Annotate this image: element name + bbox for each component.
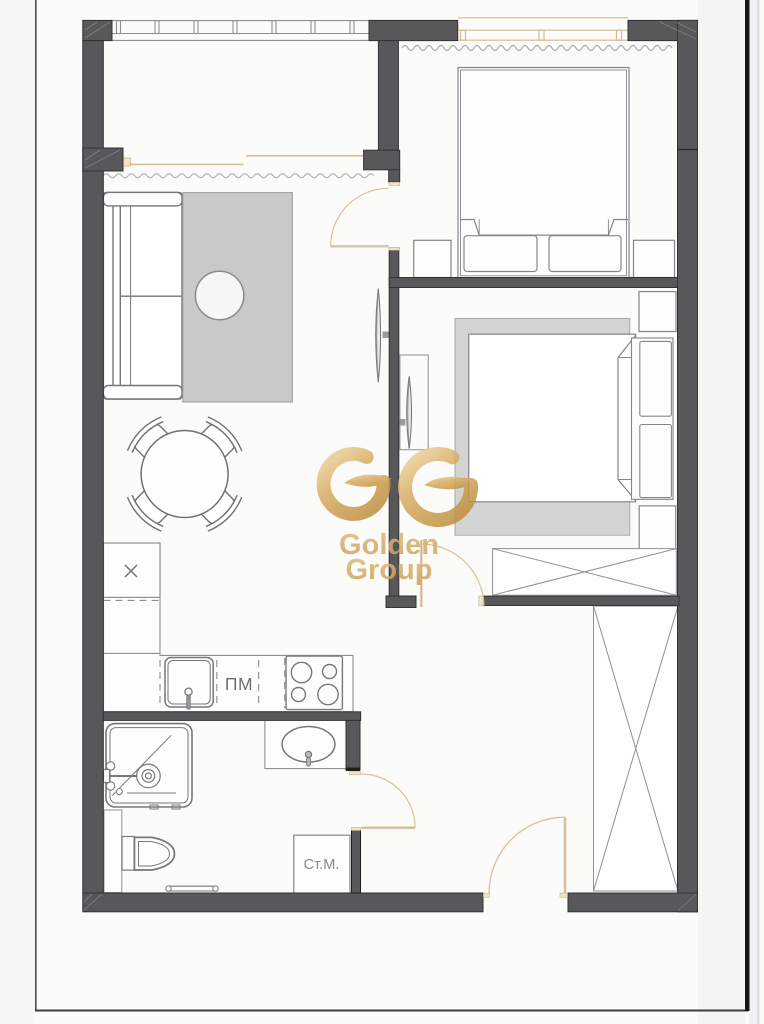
svg-text:Group: Group (346, 554, 433, 586)
svg-text:ПМ: ПМ (225, 674, 253, 694)
svg-text:Ст.М.: Ст.М. (304, 857, 340, 873)
